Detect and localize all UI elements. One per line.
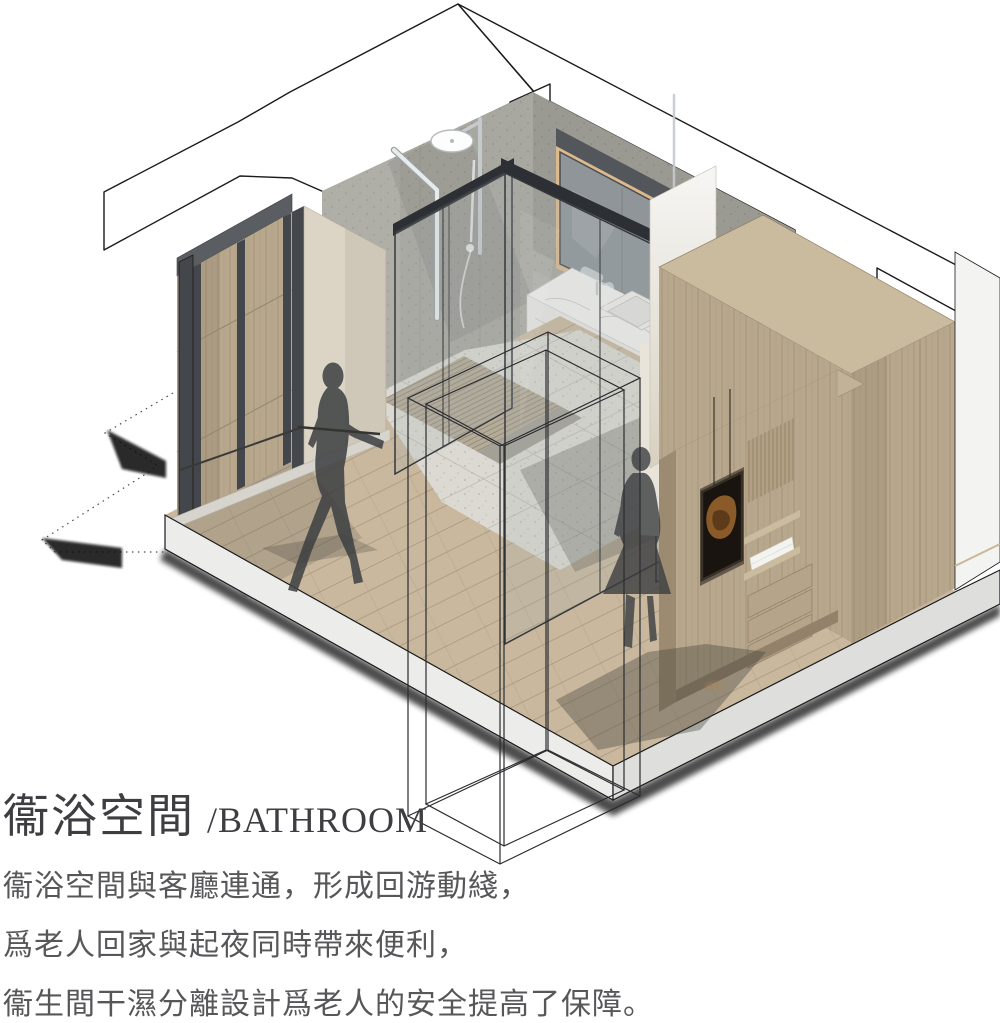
wardrobe-dark-strip-2 xyxy=(237,239,245,490)
break-lines xyxy=(42,393,173,568)
title-english: /BATHROOM xyxy=(207,800,428,840)
title-chinese: 衞浴空間 xyxy=(3,791,195,842)
wardrobe-dark-strip-3 xyxy=(283,213,291,466)
description-line-2: 爲老人回家與起夜同時帶來便利， xyxy=(3,920,903,964)
description-line-1: 衞浴空間與客廳連通，形成回游動綫， xyxy=(3,861,903,905)
cut-shadow-wedge-2 xyxy=(42,538,122,568)
exterior-white-wall xyxy=(955,252,1000,590)
wardrobe-corner-post xyxy=(179,255,193,522)
description-line-3: 衞生間干濕分離設計爲老人的安全提高了保障。 xyxy=(3,979,903,1023)
page-title: 衞浴空間/BATHROOM xyxy=(3,780,903,846)
wardrobe-dark-strip-1 xyxy=(193,263,201,512)
caption-block: 衞浴空間/BATHROOM 衞浴空間與客廳連通，形成回游動綫， 爲老人回家與起夜… xyxy=(3,780,903,1023)
cut-shadow-wedge-1 xyxy=(107,430,166,478)
bathroom-presentation-page: { "title": { "zh": "衞浴空間", "en": "/BATHR… xyxy=(0,0,1000,1007)
